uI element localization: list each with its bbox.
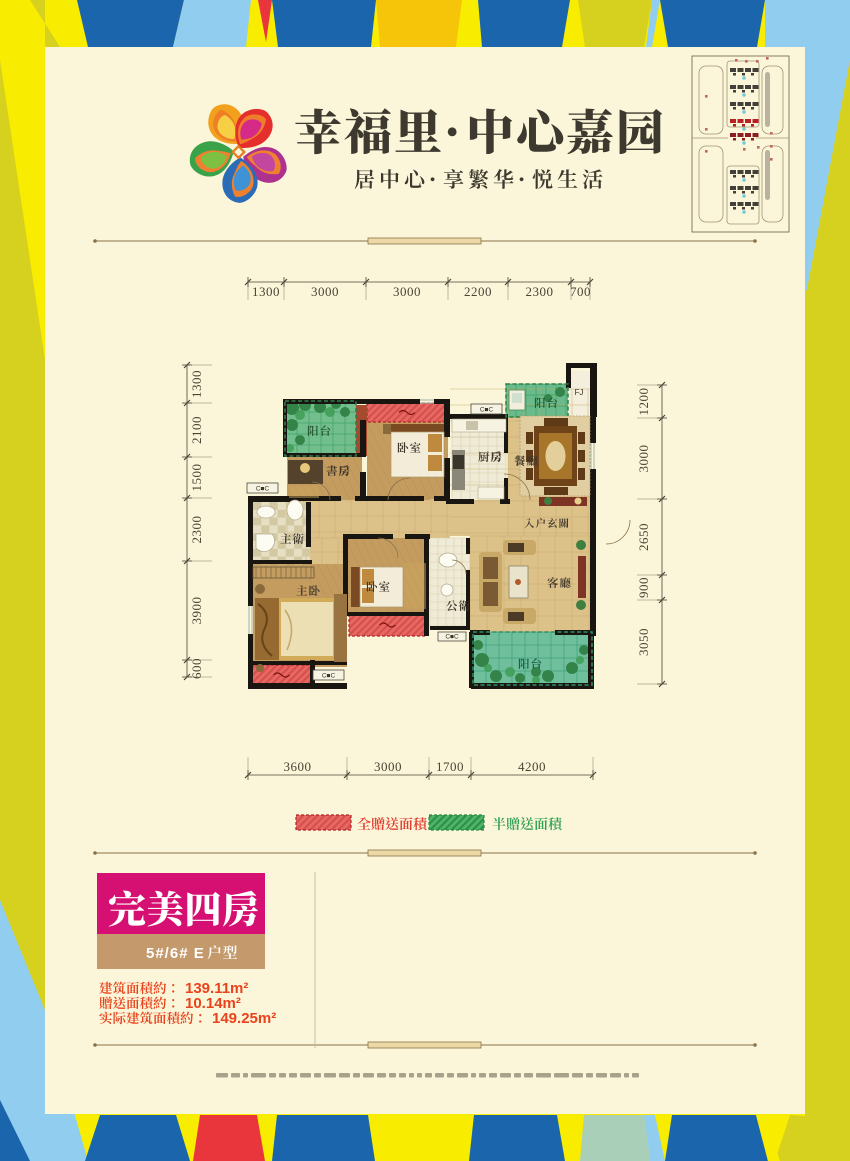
svg-text:1300: 1300 (252, 284, 280, 299)
svg-text:1300: 1300 (189, 370, 204, 398)
svg-text:700: 700 (570, 284, 591, 299)
svg-text:1700: 1700 (436, 759, 464, 774)
svg-text:2650: 2650 (636, 523, 651, 551)
svg-text:C■C: C■C (256, 486, 270, 493)
svg-text:3600: 3600 (284, 759, 312, 774)
svg-text:149.25m²: 149.25m² (212, 1010, 276, 1027)
svg-text:900: 900 (636, 577, 651, 598)
svg-text:C■C: C■C (480, 407, 494, 414)
svg-text:2300: 2300 (526, 284, 554, 299)
svg-text:C■C: C■C (322, 673, 336, 680)
svg-text:3000: 3000 (636, 445, 651, 473)
svg-text:C■C: C■C (445, 634, 459, 641)
svg-text:3000: 3000 (393, 284, 421, 299)
svg-text:3900: 3900 (189, 597, 204, 625)
svg-text:3000: 3000 (374, 759, 402, 774)
svg-text:2200: 2200 (464, 284, 492, 299)
svg-text:5#/6# E: 5#/6# E (146, 945, 205, 962)
svg-text:1500: 1500 (189, 464, 204, 492)
svg-text:4200: 4200 (518, 759, 546, 774)
svg-text:2300: 2300 (189, 516, 204, 544)
svg-text:FJ: FJ (575, 388, 584, 397)
svg-text:600: 600 (189, 658, 204, 679)
svg-text:3050: 3050 (636, 628, 651, 656)
svg-text:2100: 2100 (189, 416, 204, 444)
svg-text:3000: 3000 (311, 284, 339, 299)
svg-text:1200: 1200 (636, 388, 651, 416)
